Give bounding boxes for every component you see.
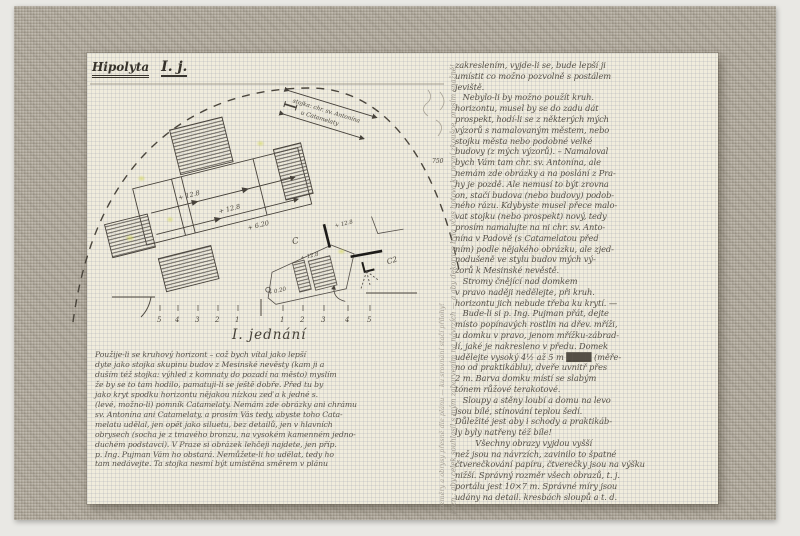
scale-number: 5 bbox=[367, 316, 372, 324]
handwritten-text-line: Všechny obrazy vyjdou vyšší bbox=[455, 438, 717, 449]
highlight-dot bbox=[166, 216, 174, 223]
highlight-dot bbox=[337, 248, 346, 255]
handwritten-text-line: hy je pozdě. Ale nemusí to být zrovna bbox=[455, 179, 717, 190]
handwritten-text-line: 2 m. Barva domku místí se slabým bbox=[455, 373, 717, 384]
handwritten-text-line: u domku v pravo, jenom mřížku-zábrad- bbox=[455, 330, 717, 341]
handwritten-text-line: horizontu, musel by se do zadu dát bbox=[455, 103, 717, 114]
handwritten-text-line: duchém podstavci). V Praze si obrázek le… bbox=[95, 440, 435, 450]
handwritten-text-line: lí, jaké je nakresleno v předu. Domek bbox=[455, 341, 717, 352]
dimension-label: + 12.8 bbox=[177, 189, 200, 202]
diagonal-annotation: stojka: chr. sv. Antonína u Catamelaty bbox=[282, 91, 377, 141]
handwritten-text-line: udány na detail. kresbách sloupů a t. d. bbox=[455, 492, 717, 503]
handwritten-text-line: prospekt, hodí-li se z některých mých bbox=[455, 114, 717, 125]
handwritten-text-line: umístit co možno pozvolně s postálem bbox=[455, 71, 717, 82]
highlight-dot bbox=[137, 175, 146, 182]
highlight-dot bbox=[125, 234, 135, 242]
handwritten-text-line: vat stojku (nebo prospekt) nový, tedy bbox=[455, 211, 717, 222]
scale-number: 4 bbox=[344, 316, 349, 324]
zone-label-c: C bbox=[291, 236, 300, 247]
handwritten-text-line: sv. Antonína ani Catamelaty, a prosím Vá… bbox=[95, 410, 435, 420]
handwritten-text-line: obrysech (socha je z tmavého bronzu, na … bbox=[95, 430, 435, 440]
photograph-of-manuscript: HipolytaI. j. bbox=[0, 0, 800, 536]
handwritten-text-line: zorů k Mesinské nevěstě. bbox=[455, 265, 717, 276]
scale-number: 3 bbox=[321, 316, 326, 324]
measuring-scale: 5 4 3 2 1 1 2 3 4 5 bbox=[112, 293, 417, 324]
handwritten-text-line: tam nedávejte. Ta stojka nesmí být umíst… bbox=[95, 459, 435, 469]
handwritten-text-line: zakreslením, vyjde-li se, bude lepší ji bbox=[455, 60, 717, 71]
handwritten-text-line: on, stačí budova (nebo budovy) podob- bbox=[455, 190, 717, 201]
right-text-column: zakreslením, vyjde-li se, bude lepší jiu… bbox=[455, 60, 717, 503]
handwritten-text-line: v pravo naději nedělejte, při kruh. bbox=[455, 287, 717, 298]
handwritten-text-line: bych Vám tam chr. sv. Antonína, ale bbox=[455, 157, 717, 168]
handwritten-text-line: horizontu jich nebude třeba ku krytí. — bbox=[455, 298, 717, 309]
handwritten-text-line: ly byly natřeny též bíle! bbox=[455, 427, 717, 438]
scale-number: 2 bbox=[214, 316, 220, 324]
stairs-hatch-right bbox=[273, 143, 313, 200]
handwritten-text-line: p. Ing. Pujman Vám ho obstará. Nemůžete-… bbox=[95, 450, 435, 460]
handwritten-text-line: tónem růžové terakotové. bbox=[455, 384, 717, 395]
small-floorplan: C C2 + 12.8 + 12.8 + 0.20 bbox=[254, 206, 417, 320]
scale-number: 3 bbox=[195, 316, 200, 324]
dashed-horizon-arc bbox=[73, 88, 459, 322]
highlight-dot bbox=[256, 140, 265, 147]
vertical-margin-note: pozn.: aby celek souhlasil s mým zabarve… bbox=[450, 63, 463, 515]
section-heading: I. jednání bbox=[232, 327, 307, 343]
zone-label-c2: C2 bbox=[386, 255, 399, 266]
handwritten-text-line: než jsou na návrzích, zavinilo to špatné bbox=[455, 449, 717, 460]
handwritten-text-line: že by se to tam hodilo, pamatuji-li se j… bbox=[95, 380, 435, 390]
handwritten-text-line: Nebylo-li by možno použít kruh. bbox=[455, 92, 717, 103]
handwritten-text-line: Sloupy a stěny loubí a domu na levo bbox=[455, 395, 717, 406]
handwritten-text-line: stojku města nebo podobné velké bbox=[455, 136, 717, 147]
handwritten-text-line: výzorů s namalovaným městem, nebo bbox=[455, 125, 717, 136]
handwritten-text-line: Stromy čnějící nad domkem bbox=[455, 276, 717, 287]
handwritten-text-line: čtverečkování papíru, čtverečky jsou na … bbox=[455, 459, 717, 470]
scale-number: 1 bbox=[280, 316, 284, 324]
handwritten-text-line: no od praktikáblu), dveře uvnitř přes bbox=[455, 362, 717, 373]
handwritten-text-line: ného rázu. Kdybyste musel přece malo- bbox=[455, 200, 717, 211]
handwritten-text-line: místo popínavých rostlin na dřev. mříži, bbox=[455, 319, 717, 330]
handwritten-text-line: melatu udělal, jen opět jako siluetu, be… bbox=[95, 420, 435, 430]
scale-number: 5 bbox=[157, 316, 162, 324]
handwritten-text-line: jsou bílé, stínování teplou šedí. bbox=[455, 406, 717, 417]
scale-number: 4 bbox=[174, 316, 179, 324]
handwritten-text-line: nína v Padově (s Catamelatou před bbox=[455, 233, 717, 244]
stairs-hatch-bottom bbox=[158, 246, 219, 292]
handwritten-text-line: portálu jest 10×7 m. Správné míry jsou bbox=[455, 481, 717, 492]
handwritten-text-line: nodušeně ve stylu budov mých vý- bbox=[455, 254, 717, 265]
handwritten-text-line: Důležité jest aby i schody a praktikáb- bbox=[455, 416, 717, 427]
handwritten-text-line: nemám zde obrázky a na poslání z Pra- bbox=[455, 168, 717, 179]
handwritten-text-line: duším též stojka: výhled z komnaty do po… bbox=[95, 370, 435, 380]
dimension-label: + 12.8 bbox=[334, 219, 354, 229]
handwritten-text-line: (levé, možno-li) pomník Catamelaty. Nemá… bbox=[95, 400, 435, 410]
dimension-label: + 6.20 bbox=[247, 219, 270, 232]
handwritten-text-line: budovy (z mých výzorů). – Namaloval bbox=[455, 146, 717, 157]
faint-pencil-scribbles: 750 bbox=[423, 90, 444, 165]
handwritten-text-line: udělejte vysoký 4½ až 5 m ████ (měře- bbox=[455, 352, 717, 363]
handwritten-text-line: ním) podle nějakého obrázku, ale zjed- bbox=[455, 244, 717, 255]
handwritten-text-line: prosím namalujte na ni chr. sv. Anto- bbox=[455, 222, 717, 233]
left-text-column: Použije-li se kruhový horizont – což byc… bbox=[95, 350, 435, 469]
handwritten-text-line: Použije-li se kruhový horizont – což byc… bbox=[95, 350, 435, 360]
handwritten-text-line: jeviště. bbox=[455, 82, 717, 93]
handwritten-text-line: Bude-li si p. Ing. Pujman přát, dejte bbox=[455, 308, 717, 319]
handwritten-text-line: nižší. Správný rozměr všech obrazů, t. j… bbox=[455, 470, 717, 481]
dimension-label: + 12.8 bbox=[218, 202, 241, 215]
faint-number: 750 bbox=[432, 158, 444, 165]
dimension-label: + 0.20 bbox=[267, 286, 287, 296]
handwritten-text-line: jako kryt spodku horizontu nějakou nízko… bbox=[95, 390, 435, 400]
main-floorplan: + 12.8 + 12.8 + 6.20 bbox=[86, 100, 328, 302]
handwritten-text-line: dyte jako stojka skupinu budov z Mesinsk… bbox=[95, 360, 435, 370]
scale-number: 1 bbox=[235, 316, 239, 324]
vertical-margin-note: rozměry a obrysy přesně dle plánu — ku s… bbox=[438, 300, 450, 512]
scale-number: 2 bbox=[299, 316, 305, 324]
